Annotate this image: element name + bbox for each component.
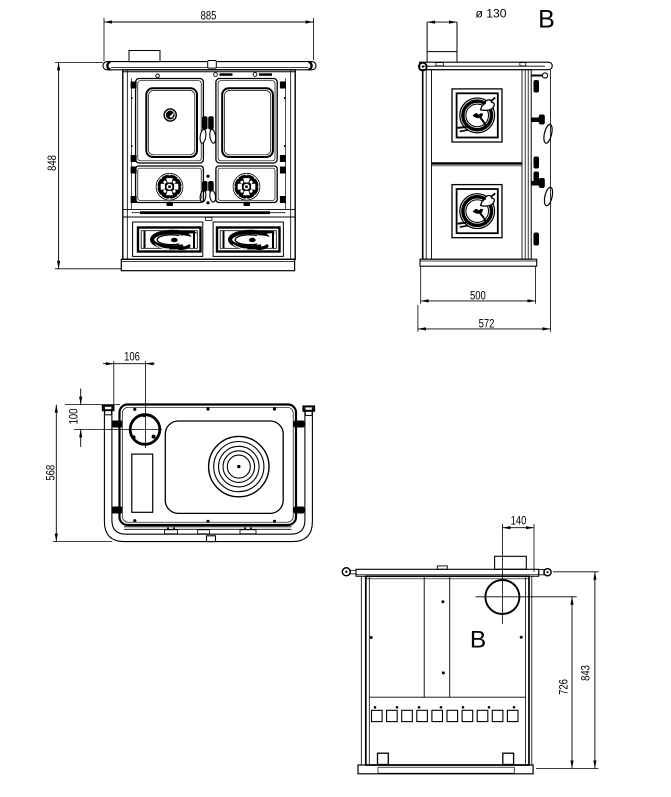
svg-text:568: 568 — [46, 465, 58, 481]
svg-text:500: 500 — [470, 291, 486, 303]
svg-text:140: 140 — [511, 516, 527, 528]
svg-text:B: B — [538, 6, 555, 34]
svg-text:726: 726 — [558, 679, 570, 695]
svg-text:848: 848 — [47, 155, 59, 171]
svg-text:106: 106 — [124, 351, 140, 363]
svg-text:ø 130: ø 130 — [476, 9, 507, 21]
svg-text:100: 100 — [69, 409, 81, 425]
svg-text:572: 572 — [479, 318, 495, 330]
svg-text:843: 843 — [581, 665, 593, 681]
svg-text:885: 885 — [201, 11, 217, 23]
svg-text:B: B — [470, 627, 486, 654]
